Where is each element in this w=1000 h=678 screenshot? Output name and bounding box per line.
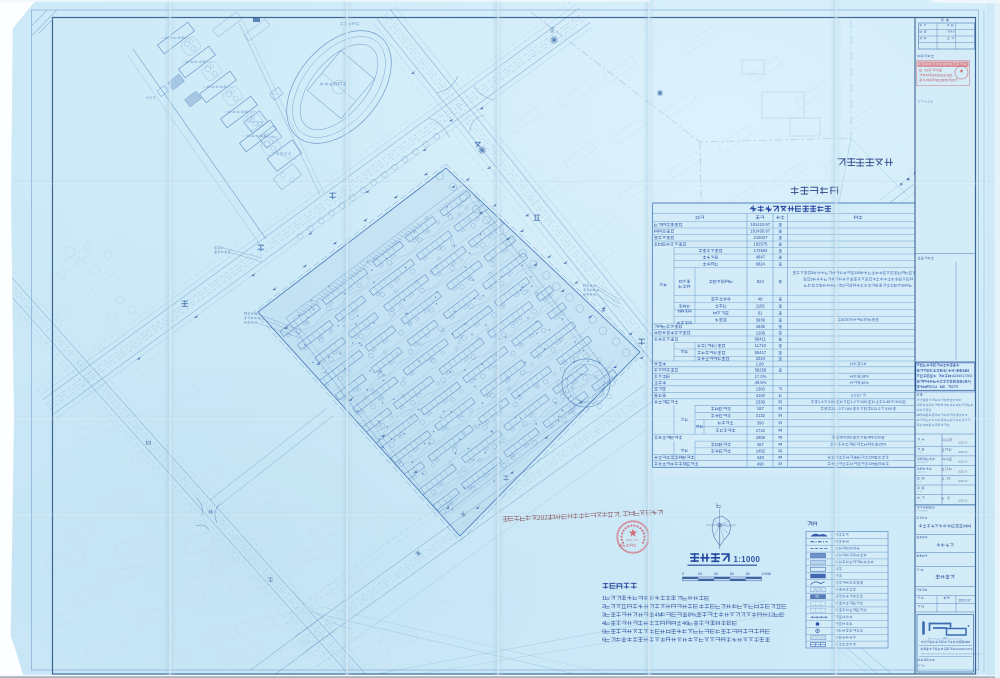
svg-text:60: 60 (730, 572, 734, 576)
svg-text:4847: 4847 (756, 255, 766, 260)
svg-text:1206: 1206 (756, 330, 766, 335)
svg-text:/100: /100 (894, 400, 901, 404)
svg-text:A): A) (968, 380, 972, 384)
svg-text:46: 46 (682, 621, 688, 627)
svg-text:2339: 2339 (756, 400, 766, 405)
svg-text:1.80: 1.80 (756, 361, 765, 366)
svg-text:187: 187 (757, 406, 765, 411)
svg-text:192575: 192575 (754, 242, 769, 247)
svg-text:348: 348 (757, 455, 765, 460)
svg-text:4: 4 (868, 436, 870, 440)
svg-text:5: 5 (946, 78, 948, 82)
svg-text:1.3: 1.3 (818, 400, 823, 404)
svg-text:HFUT Design Institute (Group): HFUT Design Institute (Group) Co.,Ltd (928, 638, 962, 641)
svg-text:8%,: 8%, (688, 613, 698, 619)
svg-text:61: 61 (758, 310, 763, 315)
svg-text:40.5%: 40.5% (755, 380, 767, 385)
svg-text:181410.97: 181410.97 (750, 222, 770, 227)
svg-text:22: 22 (951, 385, 955, 389)
svg-text:1:1000: 1:1000 (734, 555, 761, 564)
svg-text:18%: 18% (861, 375, 869, 379)
svg-text:15%: 15% (868, 462, 876, 466)
svg-text:2022.6: 2022.6 (957, 450, 968, 454)
svg-text:/100: /100 (885, 407, 892, 411)
svg-text:2022.07: 2022.07 (959, 599, 971, 603)
svg-text:4182: 4182 (756, 393, 766, 398)
svg-text:/100: /100 (845, 407, 852, 411)
svg-text:2021.1.8: 2021.1.8 (626, 538, 638, 542)
svg-text:1: 1 (602, 596, 605, 602)
svg-text:1742: 1742 (756, 428, 766, 433)
svg-text:5: 5 (602, 629, 605, 635)
svg-text:1835: 1835 (756, 324, 766, 329)
svg-text:3.2: 3.2 (875, 407, 880, 411)
svg-text:20: 20 (951, 78, 955, 82)
svg-text:69411: 69411 (755, 337, 767, 342)
svg-text:181430.97: 181430.97 (750, 229, 770, 234)
svg-text:40: 40 (714, 572, 718, 576)
svg-text:490: 490 (757, 461, 765, 466)
svg-text:55417: 55417 (755, 350, 767, 355)
svg-text:824: 824 (757, 279, 765, 284)
svg-text:5: 5 (811, 271, 813, 275)
svg-text:80: 80 (746, 572, 750, 576)
svg-text:6: 6 (602, 638, 605, 644)
svg-text:4M: 4M (655, 613, 663, 619)
svg-text:-88: -88 (815, 594, 820, 598)
svg-text:/100: /100 (873, 436, 880, 440)
svg-text:6824: 6824 (756, 261, 766, 266)
svg-text:17.0%: 17.0% (755, 374, 767, 379)
svg-text:3.2: 3.2 (851, 394, 856, 398)
svg-text:2022.6: 2022.6 (957, 499, 968, 503)
svg-text:3936: 3936 (756, 317, 766, 322)
svg-text:48: 48 (758, 296, 763, 301)
svg-text:1383: 1383 (756, 387, 766, 392)
svg-text:2024: 2024 (930, 385, 938, 389)
svg-text:2022.6: 2022.6 (957, 460, 968, 464)
svg-text:25%: 25% (879, 443, 887, 447)
svg-text:4: 4 (602, 621, 605, 627)
svg-text:150: 150 (854, 271, 860, 275)
svg-text:A2340172C3: A2340172C3 (955, 647, 972, 651)
svg-text:5: 5 (811, 277, 813, 281)
svg-text:215027: 215027 (754, 235, 769, 240)
svg-text:2023: 2023 (936, 78, 944, 82)
svg-text:0.45: 0.45 (883, 400, 890, 404)
svg-text:0: 0 (682, 572, 684, 576)
svg-text:20: 20 (698, 572, 702, 576)
svg-text:): ) (954, 369, 955, 373)
svg-text:2: 2 (602, 604, 605, 610)
svg-text:2022.6: 2022.6 (957, 479, 968, 483)
svg-text:/100: /100 (860, 400, 867, 404)
svg-text:/100: /100 (845, 436, 852, 440)
svg-text::A234017203: :A234017203 (951, 374, 972, 378)
svg-text:11710: 11710 (755, 343, 767, 348)
svg-text:1.2: 1.2 (851, 400, 856, 404)
svg-text:1.8: 1.8 (861, 362, 866, 366)
svg-text:NATIONAL ARCHITECTURAL DESIGN: NATIONAL ARCHITECTURAL DESIGN CERTIFICAT… (921, 653, 981, 656)
svg-text:467: 467 (757, 442, 765, 447)
svg-text:3: 3 (602, 613, 605, 619)
svg-text:0400316-002: 0400316-002 (932, 73, 952, 77)
svg-text:58258: 58258 (755, 367, 767, 372)
svg-text:172504: 172504 (754, 248, 769, 253)
svg-text:12: 12 (768, 613, 774, 619)
svg-text:1155: 1155 (756, 303, 766, 308)
svg-text:40%: 40% (861, 381, 869, 385)
svg-text:1492: 1492 (756, 449, 766, 454)
svg-text:8: 8 (943, 385, 945, 389)
svg-text:15%: 15% (868, 456, 876, 460)
svg-text:2022.6: 2022.6 (957, 469, 968, 473)
svg-text:100M: 100M (762, 572, 772, 576)
svg-text:1959: 1959 (756, 435, 766, 440)
svg-text:2022.6: 2022.6 (957, 440, 968, 444)
